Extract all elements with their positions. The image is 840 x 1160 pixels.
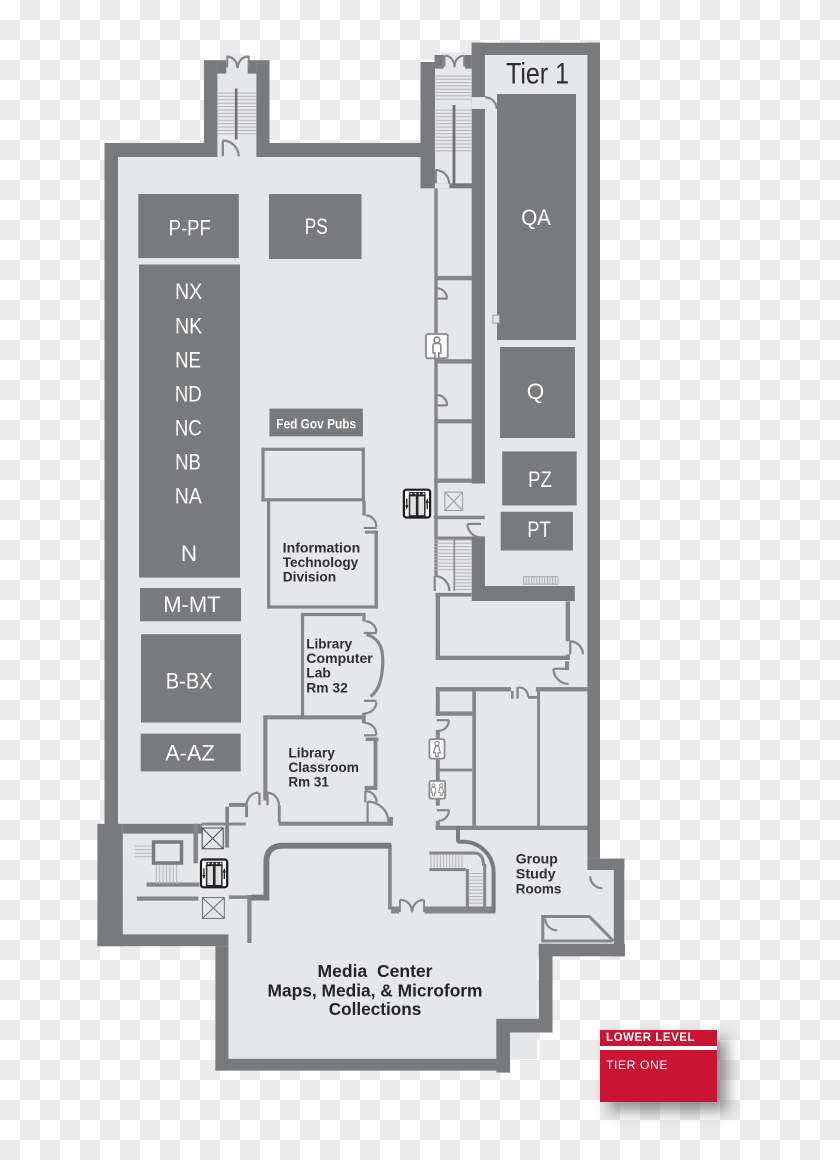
svg-text:Study: Study [516, 866, 556, 882]
svg-text:Computer: Computer [306, 650, 373, 666]
svg-text:A-AZ: A-AZ [165, 741, 215, 766]
svg-text:Technology: Technology [283, 554, 359, 570]
svg-text:Rm 32: Rm 32 [306, 679, 348, 695]
svg-text:Rooms: Rooms [516, 881, 562, 897]
svg-text:Group: Group [516, 851, 558, 867]
svg-text:PS: PS [305, 214, 328, 239]
svg-text:PZ: PZ [528, 467, 552, 492]
svg-text:N: N [181, 541, 197, 566]
svg-text:Library: Library [306, 635, 352, 651]
svg-text:NB: NB [175, 449, 201, 474]
svg-text:Collections: Collections [329, 1000, 422, 1019]
svg-text:NA: NA [175, 483, 202, 508]
svg-text:Q: Q [527, 379, 545, 404]
svg-text:Rm 31: Rm 31 [288, 774, 329, 790]
svg-text:P-PF: P-PF [169, 216, 211, 241]
svg-text:NX: NX [175, 279, 202, 304]
svg-text:Division: Division [283, 569, 337, 585]
svg-text:NE: NE [175, 347, 201, 372]
svg-text:ND: ND [175, 381, 202, 406]
svg-text:QA: QA [521, 205, 551, 230]
svg-text:Fed Gov Pubs: Fed Gov Pubs [276, 416, 356, 431]
svg-text:Tier 1: Tier 1 [506, 57, 569, 90]
svg-text:Media Center: Media Center [318, 962, 433, 981]
svg-text:PT: PT [527, 517, 551, 542]
svg-text:Information: Information [283, 539, 361, 555]
svg-text:M-MT: M-MT [163, 592, 221, 617]
svg-text:Lab: Lab [306, 665, 331, 681]
svg-text:B-BX: B-BX [166, 668, 213, 693]
svg-text:Maps, Media, & Microform: Maps, Media, & Microform [268, 981, 483, 1000]
svg-text:NC: NC [175, 415, 202, 440]
svg-text:NK: NK [175, 313, 202, 338]
